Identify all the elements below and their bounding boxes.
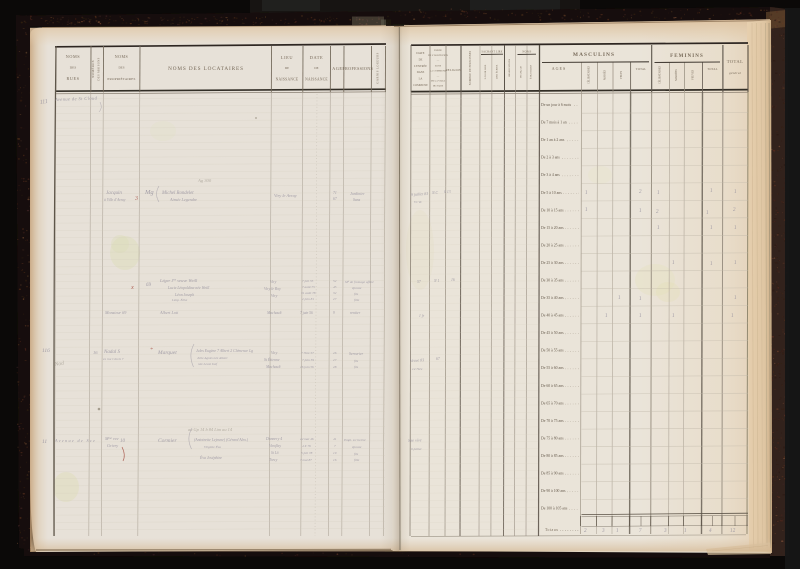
- svg-text:De 45 à 50 ans: De 45 à 50 ans: [541, 331, 564, 335]
- svg-text:69: 69: [146, 283, 152, 288]
- svg-text:Viry: Viry: [271, 351, 278, 355]
- svg-text:Empl. à l’octroi: Empl. à l’octroi: [343, 438, 365, 442]
- svg-text:fils: fils: [354, 365, 359, 369]
- svg-text:NOMS DES LOCATAIRES: NOMS DES LOCATAIRES: [168, 66, 244, 72]
- svg-text:NOMS: NOMS: [66, 54, 81, 59]
- svg-text:Jardinier: Jardinier: [350, 191, 365, 196]
- svg-text:3: 3: [601, 528, 605, 534]
- svg-text:7 août 75: 7 août 75: [302, 285, 315, 289]
- svg-text:De 75 à 80 ans: De 75 à 80 ans: [541, 436, 564, 440]
- svg-text:Nadal S: Nadal S: [103, 350, 120, 355]
- svg-text:GARNIS LOGEURS: GARNIS LOGEURS: [376, 52, 380, 83]
- svg-text:71: 71: [333, 191, 337, 195]
- svg-text:Mme vve: Mme vve: [104, 436, 119, 441]
- svg-text:27: 27: [333, 358, 337, 362]
- svg-text:SAVOIR LIRE: SAVOIR LIRE: [484, 64, 487, 79]
- svg-text:DE: DE: [285, 66, 289, 70]
- svg-text:32: 32: [333, 291, 337, 295]
- svg-text:De 65 à 70 ans: De 65 à 70 ans: [541, 401, 564, 405]
- svg-text:31 août 78: 31 août 78: [301, 291, 316, 295]
- svg-text:16: 16: [93, 350, 98, 355]
- svg-text:De 55 à 60 ans: De 55 à 60 ans: [541, 366, 564, 370]
- svg-text:Éva Joséphine: Éva Joséphine: [199, 455, 222, 460]
- svg-text:11: 11: [42, 439, 47, 445]
- svg-text:De 20 à 25 ans: De 20 à 25 ans: [541, 243, 564, 247]
- svg-text:7 juin 59: 7 juin 59: [302, 358, 314, 362]
- svg-text:52: 52: [333, 279, 337, 283]
- svg-text:DATE: DATE: [310, 55, 324, 60]
- svg-text:Viry le Roy: Viry le Roy: [264, 287, 281, 291]
- svg-text:AGES: AGES: [552, 66, 566, 71]
- svg-text:26: 26: [333, 351, 337, 355]
- svg-text:De 80 à 85 ans: De 80 à 85 ans: [541, 454, 564, 458]
- svg-text:épouse: épouse: [352, 286, 362, 290]
- svg-text:Veuve 83: Veuve 83: [410, 357, 425, 363]
- svg-text:FRANÇAIS: FRANÇAIS: [520, 65, 523, 77]
- svg-text:Sans: Sans: [353, 198, 361, 202]
- svg-text:Avenue de Sce: Avenue de Sce: [54, 438, 95, 443]
- svg-text:16 juin 56: 16 juin 56: [300, 365, 314, 369]
- svg-text:NUMÉROS: NUMÉROS: [90, 60, 95, 78]
- svg-text:COMMUNE: COMMUNE: [413, 84, 428, 87]
- svg-text:CÉLIBATAIRES: CÉLIBATAIRES: [659, 65, 662, 84]
- svg-text:Léger Jne veuve Weill: Léger Jne veuve Weill: [159, 278, 198, 284]
- svg-text:Torcy: Torcy: [269, 458, 278, 462]
- svg-text:19: 19: [333, 451, 337, 455]
- svg-text:1 fr: 1 fr: [419, 314, 425, 318]
- svg-text:De 10 à 15 ans: De 10 à 15 ans: [541, 208, 564, 212]
- svg-text:SACHANT LIRE: SACHANT LIRE: [481, 51, 502, 54]
- svg-text:DE: DE: [419, 58, 423, 61]
- svg-text:Jacquin: Jacquin: [106, 191, 122, 196]
- svg-text:ÉTRANGERS: ÉTRANGERS: [530, 64, 533, 79]
- svg-text:NOMS: NOMS: [115, 54, 129, 59]
- svg-text:De 3 à 4 ans: De 3 à 4 ans: [541, 173, 560, 177]
- svg-text:7 7bre 57: 7 7bre 57: [301, 351, 314, 355]
- svg-text:De 50 à 55 ans: De 50 à 55 ans: [541, 349, 564, 353]
- svg-text:4 X 76: 4 X 76: [302, 444, 311, 448]
- svg-text:3: 3: [663, 528, 667, 534]
- svg-text:Grivry: Grivry: [107, 443, 118, 448]
- svg-text:Léop. Élise: Léop. Élise: [171, 297, 188, 302]
- svg-text:De 35 à 40 ans: De 35 à 40 ans: [541, 296, 564, 300]
- svg-text:fille: fille: [354, 458, 360, 462]
- svg-text:De 90 à 100 ans: De 90 à 100 ans: [541, 489, 566, 493]
- svg-text:Michel Rondelet: Michel Rondelet: [161, 191, 194, 196]
- svg-text:NAISSANCE: NAISSANCE: [276, 78, 299, 82]
- svg-text:Albert Loti: Albert Loti: [159, 310, 179, 315]
- svg-text:général: général: [729, 71, 741, 75]
- svg-text:7 mai 87: 7 mai 87: [300, 458, 312, 462]
- svg-text:PROFESSIONS: PROFESSIONS: [342, 66, 373, 71]
- svg-text:TOTAL: TOTAL: [727, 59, 744, 64]
- svg-text:De 100 à 105 ans: De 100 à 105 ans: [541, 507, 568, 511]
- svg-text:VEUFS: VEUFS: [620, 70, 623, 79]
- svg-text:NOMBRE DE PERSONNES: NOMBRE DE PERSONNES: [469, 50, 472, 85]
- svg-text:116: 116: [42, 348, 50, 354]
- svg-text:22 mai 46: 22 mai 46: [300, 437, 314, 441]
- svg-text:12: 12: [730, 528, 736, 534]
- svg-text:De 25 à 30 ans: De 25 à 30 ans: [541, 261, 564, 265]
- svg-text:à Ville d’Avray: à Ville d’Avray: [104, 198, 126, 202]
- svg-text:PROPRIÉTAIRES: PROPRIÉTAIRES: [107, 76, 135, 81]
- svg-text:14 7bre: 14 7bre: [412, 367, 423, 371]
- svg-text:De 5 à 10 ans: De 5 à 10 ans: [541, 191, 562, 195]
- svg-text:N 1: N 1: [433, 279, 439, 283]
- svg-text:LA COMMUNE: LA COMMUNE: [430, 69, 447, 72]
- svg-text:épouse: épouse: [352, 445, 362, 449]
- svg-text:Léon Joseph: Léon Joseph: [174, 293, 194, 297]
- svg-text:fils: fils: [354, 452, 359, 456]
- svg-text:Serrurier: Serrurier: [349, 352, 364, 356]
- svg-text:LIRE ÉCRIRE: LIRE ÉCRIRE: [496, 64, 499, 79]
- svg-text:Totaux: Totaux: [545, 528, 559, 532]
- svg-text:TOTAL: TOTAL: [636, 67, 647, 71]
- svg-text:Viry: Viry: [271, 294, 278, 298]
- svg-text:Md de fromage affiné: Md de fromage affiné: [344, 280, 374, 284]
- svg-text:41: 41: [333, 437, 337, 441]
- svg-text:St Étienne: St Étienne: [264, 357, 280, 362]
- svg-text:De 2 à 3 ans: De 2 à 3 ans: [541, 156, 560, 160]
- svg-text:Machault: Machault: [265, 365, 281, 369]
- svg-text:De 40 à 45 ans: De 40 à 45 ans: [541, 314, 564, 318]
- svg-text:Viroflay: Viroflay: [269, 444, 281, 448]
- svg-text:7 juil 35: 7 juil 35: [302, 279, 314, 283]
- svg-text:De un jour à 6 mois: De un jour à 6 mois: [541, 103, 572, 107]
- svg-text:Viry: Viry: [270, 280, 277, 284]
- svg-text:rentier: rentier: [350, 311, 361, 315]
- svg-text:Jules Eugène 7 Albert 2 Clémen: Jules Eugène 7 Albert 2 Clémence Lg: [196, 349, 253, 353]
- svg-text:Ag 300: Ag 300: [197, 178, 212, 183]
- svg-text:ex rue Clovis 7: ex rue Clovis 7: [103, 357, 124, 361]
- svg-text:fils: fils: [354, 359, 359, 363]
- svg-text:Donnery 4: Donnery 4: [265, 437, 282, 441]
- svg-text:DANS: DANS: [417, 71, 425, 74]
- svg-text:TOTAL: TOTAL: [707, 67, 718, 71]
- svg-text:(Antoinette Lejeune) (Gérard A: (Antoinette Lejeune) (Gérard Alex.): [194, 438, 249, 442]
- svg-text:Vv Ve: Vv Ve: [414, 200, 422, 204]
- svg-text:9 juillet: 9 juillet: [411, 447, 423, 451]
- svg-text:OBSERVATIONS: OBSERVATIONS: [508, 58, 511, 77]
- svg-text:45: 45: [333, 285, 337, 289]
- svg-text:De 85 à 90 ans: De 85 à 90 ans: [541, 472, 564, 476]
- svg-text:Julie Agnès née Albert: Julie Agnès née Albert: [197, 356, 229, 360]
- svg-text:L'ENTRÉE: L'ENTRÉE: [414, 65, 427, 68]
- svg-text:FEMININS: FEMININS: [670, 54, 704, 59]
- svg-text:DES MAISONS: DES MAISONS: [97, 57, 101, 80]
- svg-text:Aimée Legendre: Aimée Legendre: [169, 197, 197, 202]
- svg-text:DES: DES: [118, 66, 124, 70]
- svg-text:27: 27: [333, 297, 337, 301]
- svg-text:fils: fils: [354, 292, 359, 296]
- svg-text:Viry le Avray: Viry le Avray: [274, 193, 297, 198]
- svg-text:3: 3: [134, 196, 138, 202]
- svg-text:16: 16: [451, 278, 455, 282]
- svg-text:Lucie Léopoldine née Weill: Lucie Léopoldine née Weill: [167, 286, 209, 290]
- svg-text:Marquet: Marquet: [157, 350, 177, 356]
- svg-text:MASCULINS: MASCULINS: [573, 52, 615, 58]
- svg-text:RELIGION: RELIGION: [446, 68, 462, 72]
- svg-text:De 7 mois à 1 an: De 7 mois à 1 an: [541, 121, 567, 125]
- svg-text:NOMS: NOMS: [522, 51, 531, 54]
- svg-text:*: *: [150, 347, 153, 353]
- svg-text:DE PARIS: DE PARIS: [433, 85, 444, 88]
- svg-text:111: 111: [39, 99, 48, 106]
- svg-text:9: 9: [333, 311, 335, 315]
- svg-text:x: x: [130, 284, 134, 291]
- svg-text:NAISSANCE: NAISSANCE: [305, 78, 328, 82]
- svg-text:Cormier: Cormier: [158, 438, 178, 444]
- svg-text:St Lô: St Lô: [271, 451, 279, 455]
- svg-text:VEUVES: VEUVES: [692, 69, 695, 80]
- svg-text:DE LA VILLE: DE LA VILLE: [431, 80, 446, 83]
- svg-text:CÉLIBATAIRES: CÉLIBATAIRES: [588, 65, 591, 84]
- svg-text:MARIÉS: MARIÉS: [603, 70, 606, 80]
- svg-text:5 juil 78: 5 juil 78: [301, 451, 313, 455]
- svg-text:DE: DE: [314, 66, 318, 70]
- svg-text:Monsieur 69: Monsieur 69: [104, 310, 127, 315]
- svg-text:28: 28: [333, 365, 337, 369]
- svg-text:De 60 à 65 ans: De 60 à 65 ans: [541, 384, 564, 388]
- svg-text:10: 10: [120, 439, 126, 444]
- svg-text:DES: DES: [70, 66, 77, 70]
- svg-text:LIEU: LIEU: [281, 55, 294, 60]
- svg-text:De 1 an à 2 ans: De 1 an à 2 ans: [541, 138, 565, 142]
- svg-text:7 juin 56: 7 juin 56: [300, 311, 313, 315]
- svg-text:AGE: AGE: [332, 66, 342, 71]
- svg-text:Mg: Mg: [144, 189, 154, 196]
- svg-text:De 70 à 75 ans: De 70 à 75 ans: [541, 419, 564, 423]
- svg-text:au Gp 14 b 84 Lim au 14: au Gp 14 b 84 Lim au 14: [188, 427, 233, 432]
- svg-text:De 30 à 35 ans: De 30 à 35 ans: [541, 279, 564, 283]
- svg-text:DATE: DATE: [416, 51, 424, 55]
- svg-text:MARIÉES: MARIÉES: [675, 69, 678, 81]
- svg-text:née Lecat Inef: née Lecat Inef: [198, 362, 218, 366]
- svg-text:7: 7: [334, 444, 336, 448]
- svg-text:16: 16: [333, 458, 337, 462]
- svg-text:fille: fille: [354, 298, 360, 302]
- svg-text:De 15 à 20 ans: De 15 à 20 ans: [541, 226, 564, 230]
- svg-text:N.C: N.C: [431, 191, 438, 195]
- svg-text:Machault: Machault: [266, 311, 282, 315]
- svg-text:DURÉE: DURÉE: [434, 49, 443, 52]
- svg-text:DANS: DANS: [435, 64, 442, 67]
- svg-text:DE L'HABITATION: DE L'HABITATION: [428, 54, 448, 57]
- svg-text:LA: LA: [419, 78, 423, 81]
- svg-text:0 13: 0 13: [444, 190, 451, 194]
- svg-text:RUES: RUES: [66, 76, 79, 81]
- svg-text:Virginie Éva: Virginie Éva: [204, 444, 221, 449]
- svg-text:2 juin 81: 2 juin 81: [302, 297, 314, 301]
